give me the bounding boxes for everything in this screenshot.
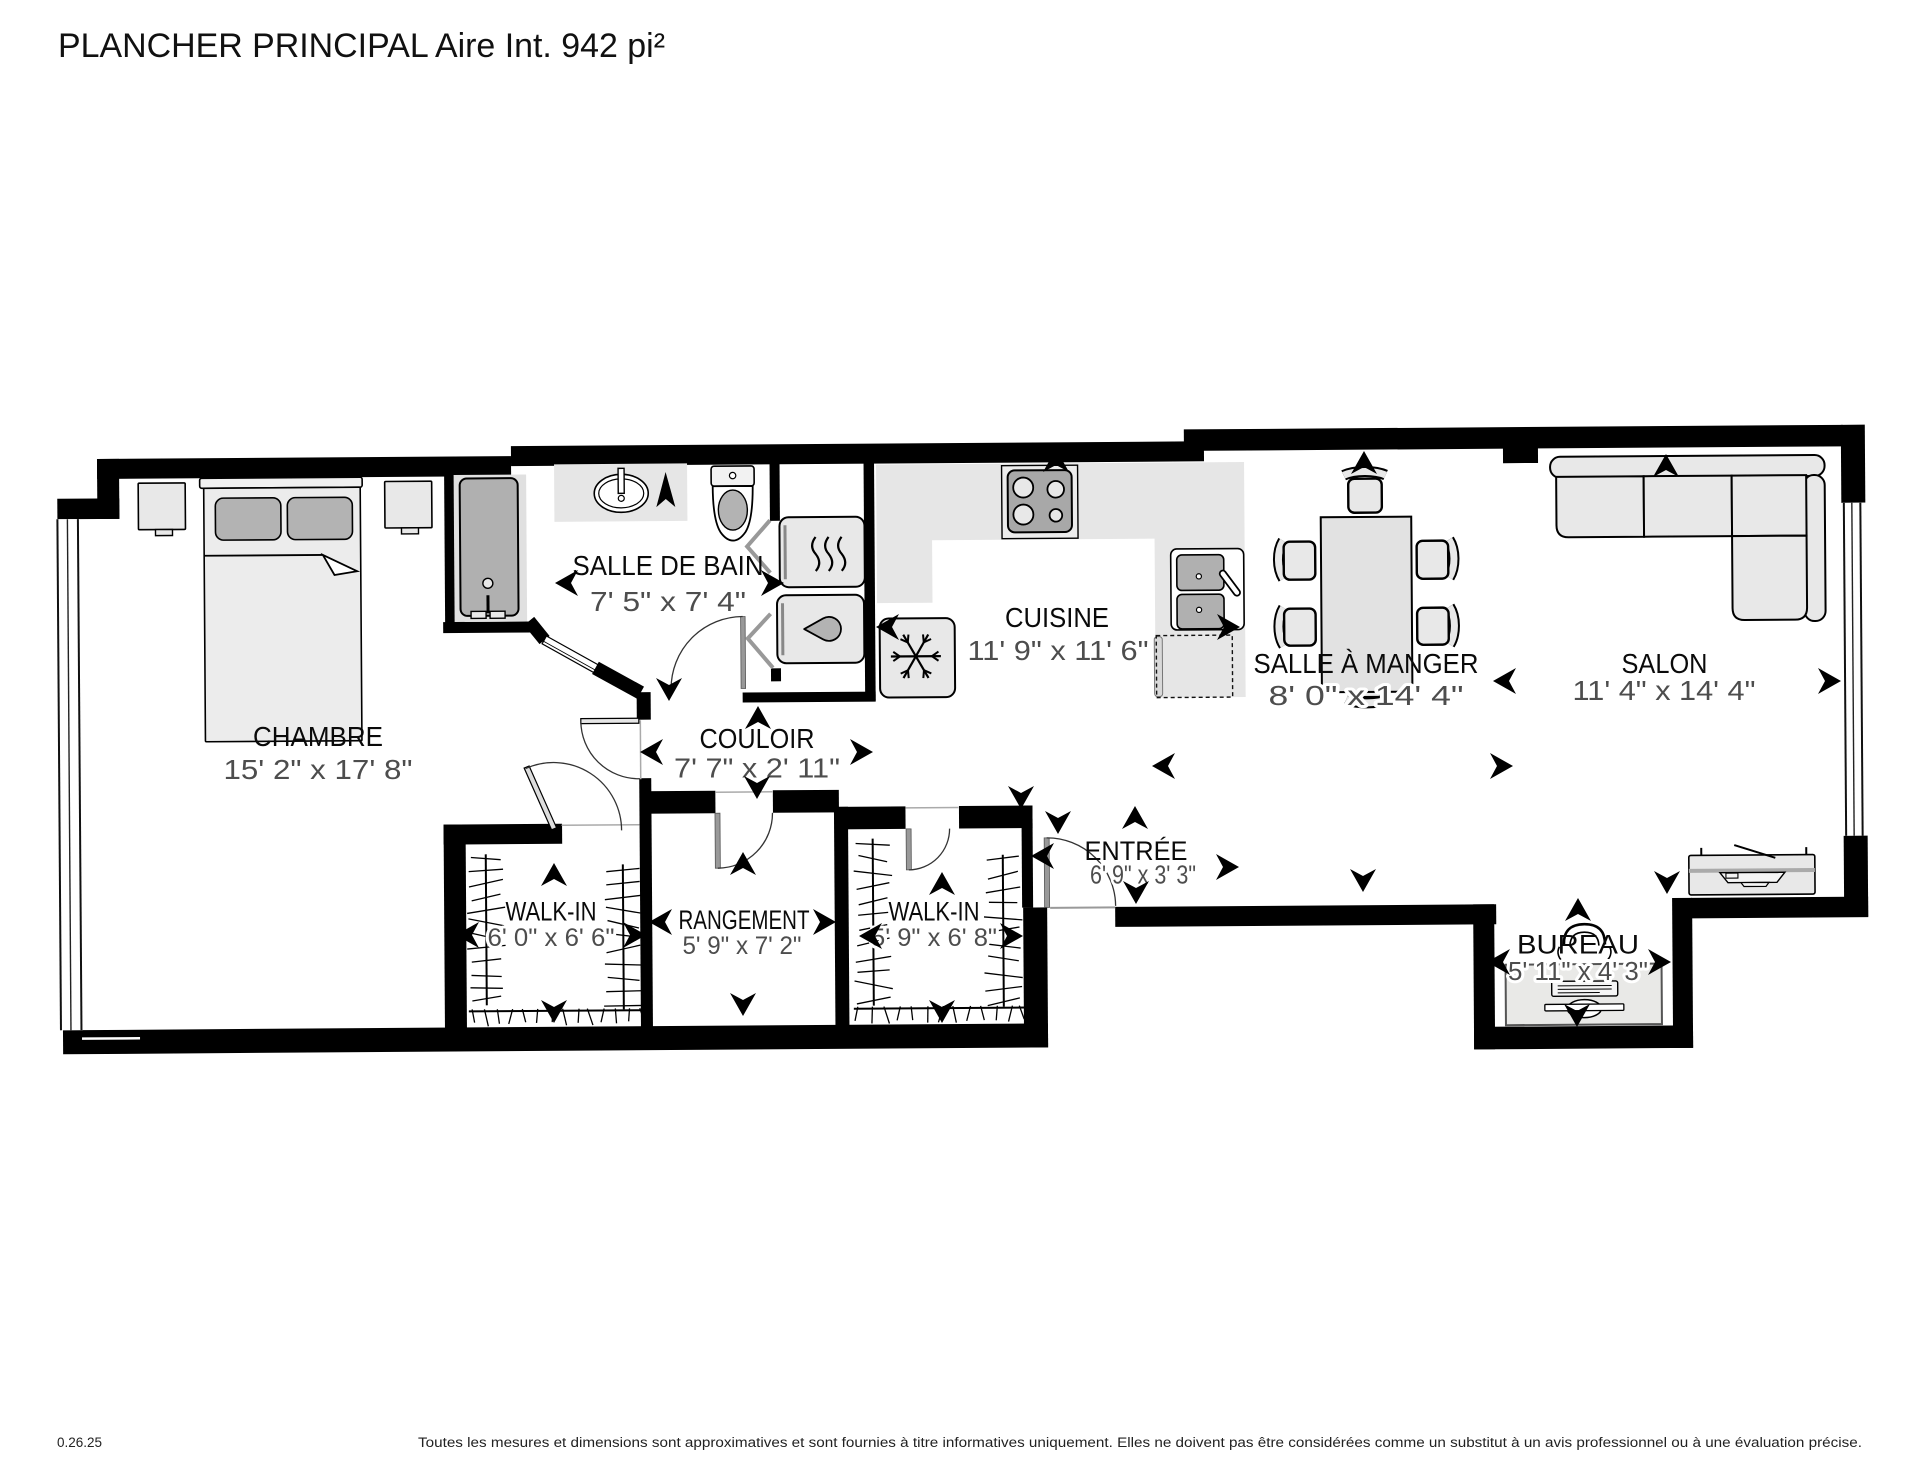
svg-text:COULOIR: COULOIR	[700, 723, 815, 754]
svg-text:5' 11" x 4' 3": 5' 11" x 4' 3"	[1508, 958, 1648, 986]
svg-text:5' 9" x 6' 8": 5' 9" x 6' 8"	[871, 924, 997, 952]
svg-text:WALK-IN: WALK-IN	[889, 897, 980, 927]
svg-text:BUREAU: BUREAU	[1517, 930, 1639, 960]
svg-text:15' 2" x 17' 8": 15' 2" x 17' 8"	[224, 754, 413, 785]
svg-text:8' 0" x 14' 4": 8' 0" x 14' 4"	[1269, 680, 1464, 711]
svg-text:SALLE À MANGER: SALLE À MANGER	[1254, 648, 1479, 679]
svg-text:7' 7" x 2' 11": 7' 7" x 2' 11"	[674, 753, 840, 784]
svg-text:11' 4" x 14' 4": 11' 4" x 14' 4"	[1573, 675, 1756, 706]
svg-text:0.26.25: 0.26.25	[57, 1435, 102, 1450]
svg-text:7' 5" x 7' 4": 7' 5" x 7' 4"	[590, 586, 746, 617]
svg-text:CHAMBRE: CHAMBRE	[253, 721, 383, 752]
svg-text:Toutes les mesures et dimensio: Toutes les mesures et dimensions sont ap…	[418, 1435, 1862, 1450]
svg-text:SALLE DE BAIN: SALLE DE BAIN	[573, 550, 764, 581]
svg-text:11' 9" x 11' 6": 11' 9" x 11' 6"	[968, 635, 1149, 666]
svg-text:CUISINE: CUISINE	[1005, 602, 1109, 633]
svg-text:PLANCHER PRINCIPAL Aire Int. 9: PLANCHER PRINCIPAL Aire Int. 942 pi²	[58, 27, 665, 65]
svg-text:5' 9" x 7' 2": 5' 9" x 7' 2"	[683, 932, 802, 960]
svg-text:6' 0" x 6' 6": 6' 0" x 6' 6"	[488, 924, 615, 952]
svg-text:WALK-IN: WALK-IN	[506, 897, 597, 927]
svg-text:RANGEMENT: RANGEMENT	[679, 905, 810, 935]
